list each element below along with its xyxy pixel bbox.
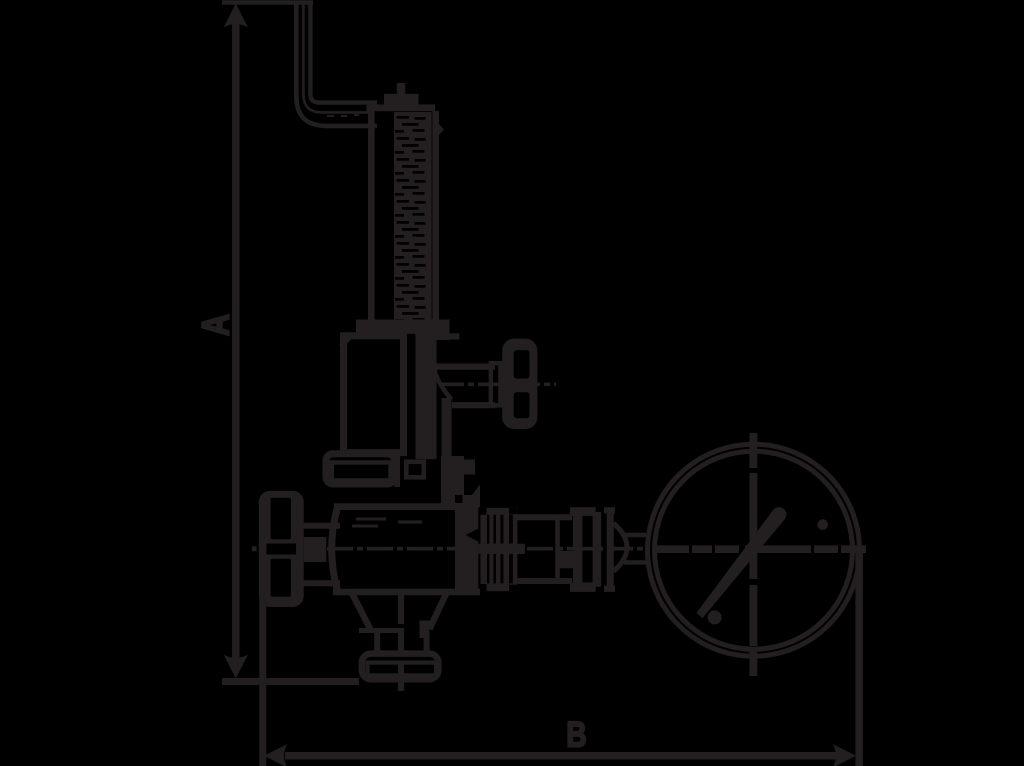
svg-text:B: B: [566, 714, 586, 754]
svg-text:A: A: [195, 314, 237, 336]
